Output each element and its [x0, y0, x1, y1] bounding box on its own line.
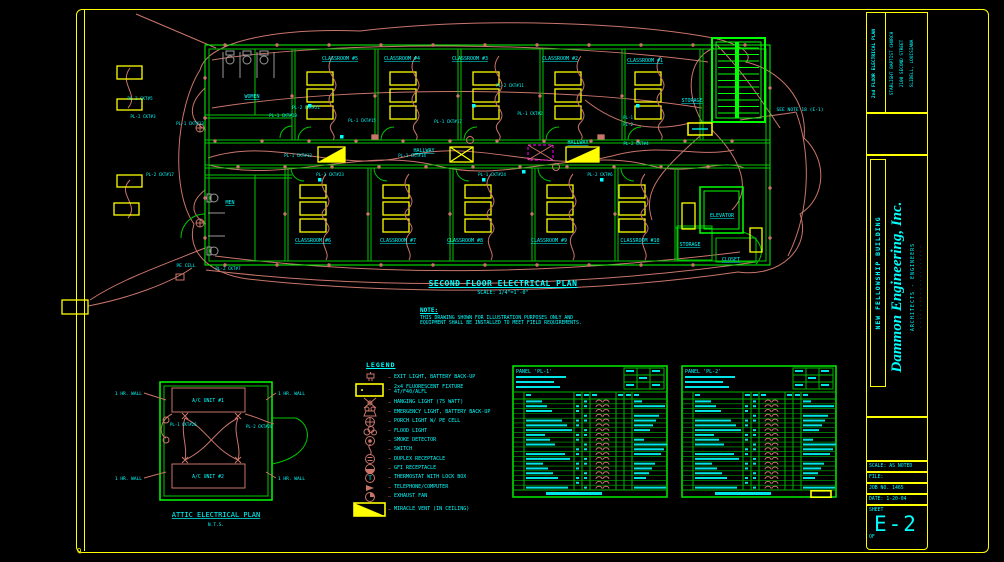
- misc-walls: [675, 122, 712, 228]
- legend-dash: —: [388, 400, 391, 406]
- receptacle-symbol: [620, 94, 623, 97]
- fluorescent-fixture: [307, 72, 333, 85]
- legend-item: —2x4 FLUORESCENT FIXTURE4T/F40/ALFL: [352, 382, 527, 398]
- legend-title: LEGEND: [366, 361, 527, 369]
- room-label: CLASSROOM #1: [627, 58, 663, 64]
- panel-schedule-pl1: PANEL 'PL-1': [512, 365, 668, 502]
- legend-dash: —: [388, 409, 391, 415]
- receptacle-symbol: [743, 43, 746, 46]
- receptacle-symbol: [379, 263, 382, 266]
- plan-title: SECOND FLOOR ELECTRICAL PLAN: [408, 279, 598, 288]
- tb-firm-sub: ARCHITECTS - ENGINEERS: [910, 160, 916, 414]
- tb-date: DATE: 1-20-04: [866, 494, 928, 505]
- legend-dash: —: [388, 438, 391, 444]
- miracle-vent-fill: [318, 147, 345, 162]
- toilet-tank: [226, 51, 234, 55]
- receptacle-symbol: [275, 43, 278, 46]
- tb-firm-name: Dammon Engineering, Inc.: [889, 160, 906, 414]
- legend-label: FLOOD LIGHT: [394, 429, 427, 435]
- door-arc: [298, 127, 311, 140]
- circuit-label: PL-2 CKT#5: [127, 96, 153, 101]
- legend-label: HANGING LIGHT (75 WATT): [394, 400, 463, 406]
- circuit-label: PL-1 CKT#23: [316, 172, 344, 177]
- legend-label: EXHAUST FAN: [394, 494, 427, 500]
- receptacle-symbol: [538, 94, 541, 97]
- door-arc: [743, 232, 761, 264]
- receptacle-symbol: [283, 212, 286, 215]
- receptacle-symbol: [213, 139, 216, 142]
- tb-address2: SLIDELL, LOUISIANA: [910, 15, 915, 112]
- receptacle-symbol: [456, 94, 459, 97]
- door-arc: [280, 126, 292, 138]
- circuit-label: PL-1: [623, 115, 634, 120]
- tb-address1: 2100 SECOND STREET: [900, 15, 905, 112]
- plumbing-fixtures: [207, 51, 274, 255]
- wiring-path: [136, 14, 216, 48]
- receptacle-symbol: [471, 165, 474, 168]
- receptacle-symbol: [495, 139, 498, 142]
- door-arc: [538, 168, 551, 181]
- restroom-fixture: [114, 203, 139, 215]
- receptacle-symbol: [706, 165, 709, 168]
- receptacle-symbol: [354, 139, 357, 142]
- fluorescent-fixture: [555, 72, 581, 85]
- door-arc: [291, 168, 304, 181]
- circuit-label: PL-2: [623, 122, 634, 127]
- device-mark: [318, 178, 322, 182]
- ac-unit-label: A/C UNIT #1: [192, 398, 224, 404]
- receptacle-symbol: [483, 43, 486, 46]
- room-label: ELEVATOR: [710, 213, 735, 219]
- legend: LEGEND —EXIT LIGHT, BATTERY BACK-UP—2x4 …: [352, 361, 527, 518]
- legend-dash: —: [388, 447, 391, 453]
- door-arc: [621, 168, 634, 181]
- legend-label: DUPLEX RECEPTACLE: [394, 457, 445, 463]
- legend-dash: —: [388, 494, 391, 500]
- receptacle-symbol: [768, 86, 771, 89]
- receptacle-symbol: [327, 263, 330, 266]
- receptacle-symbol: [589, 139, 592, 142]
- legend-dash: —: [388, 466, 391, 472]
- circuit-label: PL-1 CKT#19: [269, 113, 297, 118]
- circuit-label: PL-2 CKT#7: [215, 266, 241, 271]
- receptacle-symbol: [373, 94, 376, 97]
- fluorescent-fixture: [547, 219, 573, 232]
- tb-building-name: NEW FELLOWSHIP BUILDING: [874, 161, 882, 385]
- note-line: EQUIPMENT SHALL BE INSTALLED TO MEET FIE…: [420, 321, 582, 326]
- plan-title-block: SECOND FLOOR ELECTRICAL PLAN SCALE: 1/4"…: [408, 279, 598, 296]
- annotation-label: PE CELL: [176, 263, 196, 269]
- room-label: CLASSROOM #6: [295, 238, 331, 244]
- miracle-vent-icon: [352, 502, 388, 517]
- receptacle-symbol: [683, 139, 686, 142]
- legend-items: —EXIT LIGHT, BATTERY BACK-UP—2x4 FLUORES…: [352, 373, 527, 518]
- room-label: MEN: [225, 200, 234, 206]
- hr-wall-label: 1 HR. WALL: [115, 391, 142, 397]
- door-arc: [546, 127, 559, 140]
- room-label: CLASSROOM #8: [447, 238, 483, 244]
- legend-label: EMERGENCY LIGHT, BATTERY BACK-UP: [394, 410, 490, 416]
- room-label: CLASSROOM #3: [452, 56, 488, 62]
- exhaust-fan-icon: [352, 491, 388, 503]
- circuit-label: PL-1 CKT#24: [478, 172, 506, 177]
- title-block: 2nd FLOOR ELECTRICAL PLAN STARLIGHT BAPT…: [864, 10, 934, 552]
- receptacle-symbol: [530, 212, 533, 215]
- room-label: STORAGE: [679, 242, 700, 248]
- wiring-path: [126, 68, 131, 108]
- hr-wall-label: 1 HR. WALL: [278, 476, 305, 482]
- device-mark: [522, 170, 526, 174]
- legend-label: THERMOSTAT WITH LOCK BOX: [394, 475, 466, 481]
- light-fixtures: [114, 66, 661, 232]
- legend-label: SMOKE DETECTOR: [394, 438, 436, 444]
- receptacle-symbol: [565, 165, 568, 168]
- legend-label: 2x4 FLUORESCENT FIXTURE4T/F40/ALFL: [394, 385, 463, 396]
- annotation-label: SEE NOTE 18 (E-1): [776, 107, 823, 113]
- ac-unit-label: A/C UNIT #2: [192, 474, 224, 480]
- attic-plan: A/C UNIT #1 A/C UNIT #2 1 HR. WALL 1 HR.…: [100, 368, 320, 533]
- legend-dash: —: [388, 475, 391, 481]
- receptacle-symbol: [448, 139, 451, 142]
- receptacle-symbol: [236, 165, 239, 168]
- receptacle-symbol: [379, 43, 382, 46]
- tb-firm-fineprint: · · · · · · · · · · · · · · · · · · · ·: [919, 160, 923, 414]
- schedule-grid: PANEL 'PL-2': [681, 365, 837, 498]
- receptacle-symbol: [483, 263, 486, 266]
- legend-dash: —: [388, 428, 391, 434]
- toilet: [243, 56, 251, 64]
- legend-label: PORCH LIGHT W/ PE CELL: [394, 419, 460, 425]
- flood-light-box: [62, 300, 88, 314]
- device-mark: [482, 178, 486, 182]
- receptacle-symbol: [542, 139, 545, 142]
- attic-circuit-label: PL-2 CKT#28: [246, 424, 273, 429]
- tb-blank-box2: [866, 417, 928, 461]
- circuit-label: PL-1 CKT#14: [398, 153, 426, 158]
- toilet-tank: [243, 51, 251, 55]
- wiring-path: [125, 180, 131, 218]
- fluorescent-fixture: [619, 219, 645, 232]
- legend-dash: —: [388, 456, 391, 462]
- miracle-vent-fill: [566, 147, 599, 162]
- legend-label: SWITCH: [394, 447, 412, 453]
- receptacle-symbol: [535, 263, 538, 266]
- receptacle-symbol: [283, 165, 286, 168]
- fluorescent-fixture: [635, 72, 661, 85]
- toilet: [260, 56, 268, 64]
- tb-scale: SCALE: AS NOTED: [866, 461, 928, 472]
- room-label: CLOSET: [722, 257, 740, 263]
- circuit-label: PL-2 CKT#17: [146, 172, 174, 177]
- device-mark: [636, 104, 640, 108]
- tb-file: FILE:: [866, 472, 928, 483]
- exit-light: [598, 135, 604, 139]
- fluorescent-fixture: [300, 219, 326, 232]
- corner-mark: Q: [77, 547, 81, 555]
- legend-dash: —: [388, 375, 391, 381]
- note-title: NOTE:: [420, 307, 582, 314]
- attic-walls: [160, 382, 307, 500]
- fluorescent-fixture: [390, 72, 416, 85]
- receptacle-symbol: [203, 116, 206, 119]
- exit-light: [372, 135, 378, 139]
- door-arc: [381, 127, 394, 140]
- cad-sheet: { "sheet": { "project": { "plan_name": "…: [0, 0, 1004, 562]
- hr-wall-label: 1 HR. WALL: [278, 391, 305, 397]
- receptacle-symbol: [639, 263, 642, 266]
- fluorescent-fixture: [555, 106, 581, 119]
- receptacle-symbol: [401, 139, 404, 142]
- device-mark: [600, 178, 604, 182]
- circuit-label: PL-2 CKT#6: [587, 172, 613, 177]
- legend-item: —EXIT LIGHT, BATTERY BACK-UP: [352, 373, 527, 382]
- legend-label: MIRACLE VENT (IN CEILING): [394, 507, 469, 513]
- floor-plan: WOMENMENCLASSROOM #5CLASSROOM #4CLASSROO…: [40, 8, 860, 318]
- tb-sheet-box: SHEET E-2 OF: [866, 505, 928, 550]
- receptacle-symbol: [587, 43, 590, 46]
- fluorescent-fixture: [635, 106, 661, 119]
- stall-partitions: [208, 52, 274, 236]
- legend-label: TELEPHONE/COMPUTER: [394, 485, 448, 491]
- receptacle-symbol: [307, 139, 310, 142]
- attic-scale: N.T.S.: [208, 522, 224, 528]
- wiring-path: [788, 112, 806, 256]
- circuit-label: PL-2 CKT#4: [623, 141, 649, 146]
- room-label: CLASSROOM #5: [322, 56, 358, 62]
- circuit-label: PL-1 CKT#13: [176, 121, 204, 126]
- receptacle-symbol: [768, 186, 771, 189]
- circuit-label: PL-1 CKT#2: [517, 111, 543, 116]
- receptacle-symbol: [203, 236, 206, 239]
- receptacle-symbol: [659, 165, 662, 168]
- wiring-path: [90, 248, 205, 300]
- receptacle-symbol: [424, 165, 427, 168]
- receptacle-symbol: [377, 165, 380, 168]
- storage-fixture: [682, 203, 695, 229]
- legend-dash: —: [388, 507, 391, 513]
- legend-item: —MIRACLE VENT (IN CEILING): [352, 502, 527, 518]
- receptacle-symbol: [613, 212, 616, 215]
- receptacle-symbol: [768, 236, 771, 239]
- door-arc: [464, 127, 477, 140]
- wiring-path: [212, 91, 702, 108]
- receptacle-symbol: [327, 43, 330, 46]
- receptacle-symbol: [330, 165, 333, 168]
- room-wiring: [322, 56, 664, 260]
- stairwell: [712, 38, 765, 122]
- room-label: WOMEN: [244, 94, 259, 100]
- receptacle-symbol: [203, 76, 206, 79]
- receptacle-symbol: [639, 43, 642, 46]
- receptacle-symbol: [691, 43, 694, 46]
- attic-title: ATTIC ELECTRICAL PLAN: [172, 511, 261, 519]
- schedule-grid: PANEL 'PL-1': [512, 365, 668, 498]
- fluorescent-fixture: [473, 72, 499, 85]
- fluorescent-fixture: [473, 106, 499, 119]
- circuit-label: PL-2 CKT#21: [292, 105, 320, 110]
- plan-note: NOTE: THIS DRAWING SHOWN FOR ILLUSTRATIO…: [420, 307, 582, 326]
- room-label: CLASSROOM #10: [620, 238, 659, 244]
- tb-sheet-number: E-2: [874, 513, 927, 535]
- room-label: CLASSROOM #9: [531, 238, 567, 244]
- device-mark: [340, 135, 344, 139]
- receptacle-symbol: [612, 165, 615, 168]
- panel-schedule-pl2: PANEL 'PL-2': [681, 365, 837, 502]
- legend-dash: —: [388, 387, 391, 393]
- schedule-title: PANEL 'PL-2': [685, 369, 721, 375]
- roof-outline: [179, 23, 821, 290]
- circuit-label: PL-2 CKT#3: [130, 114, 156, 119]
- tb-firm-box: NEW FELLOWSHIP BUILDING Dammon Engineeri…: [866, 155, 928, 417]
- hr-wall-label: 1 HR. WALL: [115, 476, 142, 482]
- circuit-label: PL-1 CKT#15: [348, 118, 376, 123]
- receptacle-symbol: [260, 139, 263, 142]
- circuit-label: PL-1 CKT#17: [434, 119, 462, 124]
- room-label: CLASSROOM #7: [380, 238, 416, 244]
- legend-label: EXIT LIGHT, BATTERY BACK-UP: [394, 375, 475, 381]
- wiring-path: [712, 130, 742, 210]
- schedule-title: PANEL 'PL-1': [516, 369, 552, 375]
- door-arc: [628, 127, 641, 140]
- room-label: STORAGE: [681, 98, 702, 104]
- receptacle-symbol: [691, 263, 694, 266]
- plan-scale: SCALE: 1/4"=1'-0": [408, 290, 598, 296]
- room-label: CLASSROOM #2: [542, 56, 578, 62]
- receptacle-symbol: [275, 263, 278, 266]
- receptacle-symbol: [730, 139, 733, 142]
- fluorescent-fixture: [383, 219, 409, 232]
- fluorescent-fixture: [390, 106, 416, 119]
- tb-project-box: 2nd FLOOR ELECTRICAL PLAN STARLIGHT BAPT…: [866, 12, 928, 113]
- fluorescent-fixture-icon: [352, 383, 388, 397]
- tb-client: STARLIGHT BAPTIST CHURCH: [890, 15, 895, 112]
- room-label: CLASSROOM #4: [384, 56, 420, 62]
- tb-plan-name: 2nd FLOOR ELECTRICAL PLAN: [872, 15, 877, 112]
- receptacle-symbol: [431, 43, 434, 46]
- tb-job: JOB NO. 1465: [866, 483, 928, 494]
- receptacle-symbol: [290, 94, 293, 97]
- attic-circuit-label: PL-1 CKT#26: [170, 422, 197, 427]
- legend-item: —EXHAUST FAN: [352, 492, 527, 501]
- receptacle-symbol: [203, 196, 206, 199]
- door-arc: [374, 168, 387, 181]
- receptacle-symbol: [535, 43, 538, 46]
- receptacle-symbol: [518, 165, 521, 168]
- legend-label: GFI RECEPTACLE: [394, 466, 436, 472]
- emergency-fixture: [528, 145, 553, 160]
- circuit-label: PL-2 CKT#11: [496, 83, 524, 88]
- receptacle-symbol: [431, 263, 434, 266]
- device-mark: [472, 104, 476, 108]
- receptacle-symbol: [366, 212, 369, 215]
- circuit-label: PL-1 CKT#12: [284, 153, 312, 158]
- legend-dash: —: [388, 485, 391, 491]
- x-fixture-diagonals: [450, 147, 473, 162]
- exit-light-icon: [352, 372, 388, 384]
- receptacle-symbol: [223, 43, 226, 46]
- receptacle-symbol: [587, 263, 590, 266]
- tb-blank-box: [866, 113, 928, 155]
- fluorescent-fixture: [465, 219, 491, 232]
- room-label: HALLWAY: [567, 140, 588, 146]
- receptacle-symbol: [448, 212, 451, 215]
- legend-dash: —: [388, 419, 391, 425]
